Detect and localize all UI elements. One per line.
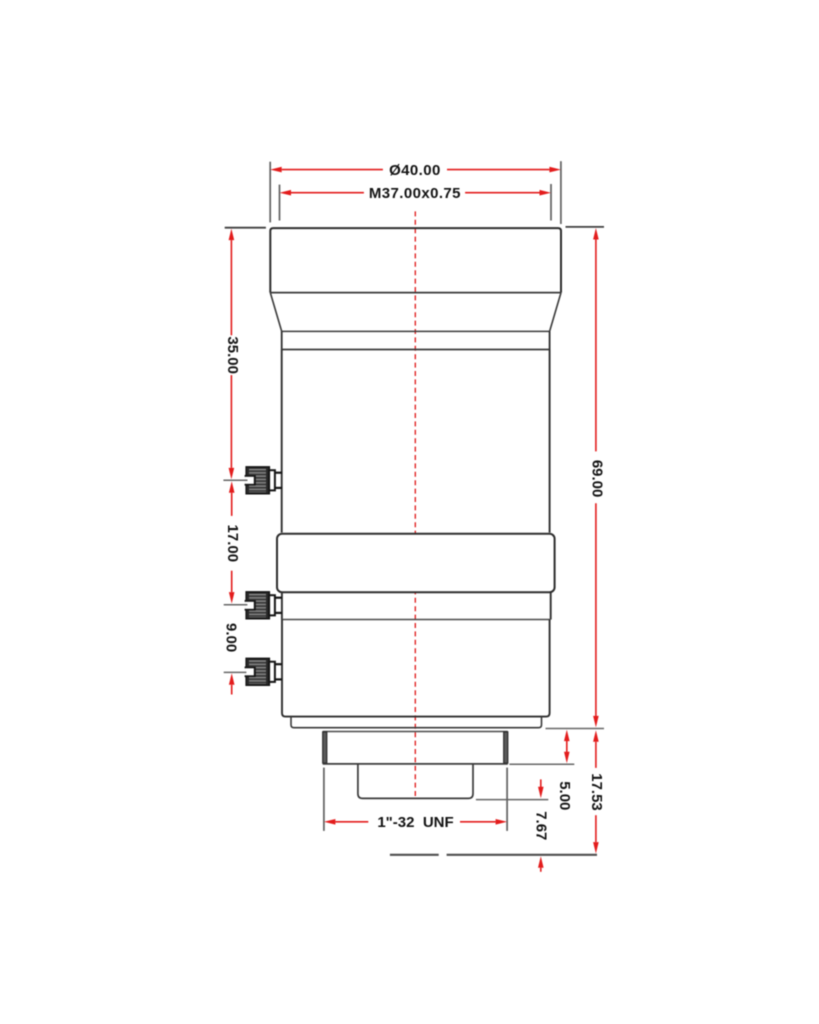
svg-text:1"-32 UNF: 1"-32 UNF	[377, 814, 453, 831]
svg-text:17.00: 17.00	[224, 525, 241, 563]
svg-text:69.00: 69.00	[589, 460, 606, 498]
svg-text:9.00: 9.00	[223, 623, 240, 652]
svg-text:Ø40.00: Ø40.00	[389, 162, 441, 179]
svg-text:5.00: 5.00	[556, 781, 573, 810]
svg-text:M37.00x0.75: M37.00x0.75	[369, 185, 461, 202]
svg-text:35.00: 35.00	[224, 336, 241, 374]
svg-text:7.67: 7.67	[533, 811, 550, 840]
svg-text:17.53: 17.53	[588, 773, 605, 811]
